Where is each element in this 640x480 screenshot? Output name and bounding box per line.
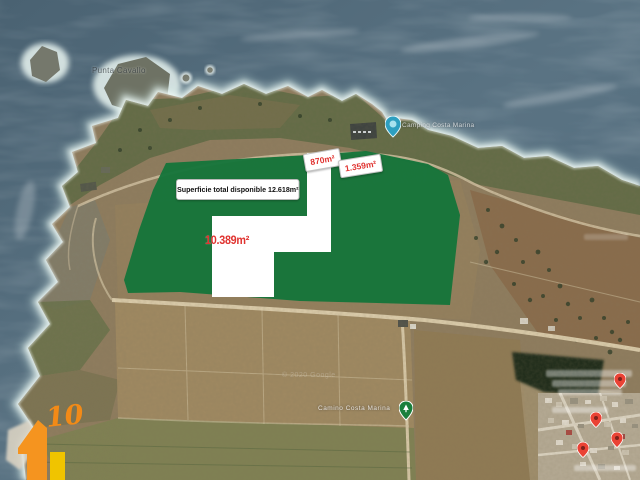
listing-image: Punta Cavallo Camping Costa Marina Camin… xyxy=(0,0,640,480)
aerial-basemap xyxy=(0,0,640,480)
access-corridor-cutout xyxy=(307,153,331,219)
town xyxy=(538,393,640,480)
plot-overlay xyxy=(124,151,460,305)
brand-logo-number: 10 xyxy=(45,401,85,432)
